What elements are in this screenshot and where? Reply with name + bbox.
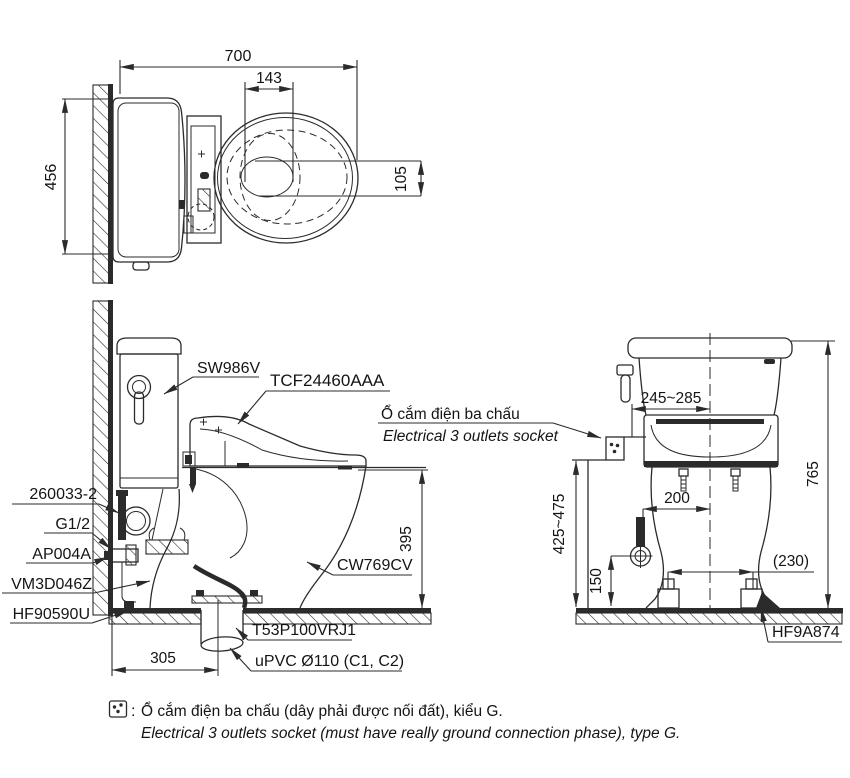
- dim-700-label: 700: [225, 48, 252, 65]
- top-view: 700 143 456 105: [43, 48, 421, 284]
- front-floor-hatch: [576, 613, 842, 624]
- dim-456-label: 456: [43, 164, 60, 191]
- legend-note-vi: Ổ cắm điện ba chấu (dây phải được nối đấ…: [141, 702, 503, 720]
- dim-seat-center: 143: [245, 70, 293, 182]
- flush-knob: [128, 376, 151, 399]
- top-control-unit: [184, 116, 221, 243]
- label-drain-pipe: uPVC Ø110 (C1, C2): [255, 653, 404, 670]
- side-floor-hatch-left: [109, 613, 201, 624]
- side-cistern: [117, 338, 181, 488]
- dim-395-label: 395: [398, 526, 415, 552]
- legend-note-en: Electrical 3 outlets socket (must have r…: [141, 725, 680, 742]
- label-cistern: SW986V: [197, 360, 260, 377]
- dim-765-label: 765: [805, 461, 822, 487]
- label-supply-hose: 260033-2: [29, 486, 97, 503]
- dim-143-label: 143: [256, 70, 282, 87]
- front-bowl: [646, 467, 780, 608]
- socket-label-vi: Ổ cắm điện ba chấu: [381, 405, 520, 423]
- dim-425-475-label: 425~475: [551, 494, 568, 555]
- dim-105-label: 105: [393, 166, 410, 192]
- dim-foot-spacing: (230): [668, 553, 814, 589]
- dim-valve-height: 150: [588, 556, 633, 606]
- dim-top-width: 700: [120, 48, 357, 160]
- dim-150-label: 150: [588, 568, 605, 594]
- top-cistern: [113, 98, 185, 270]
- side-labels: SW986V TCF24460AAA Ổ cắm điện ba chấu El…: [2, 360, 601, 671]
- label-flange: T53P100VRJ1: [252, 622, 356, 639]
- dim-230-label: (230): [773, 553, 809, 570]
- electrical-socket-icon: [572, 437, 646, 608]
- floor-flange: [192, 596, 262, 603]
- drain-pipe: [201, 636, 244, 653]
- dim-center-offset: 105: [255, 161, 421, 196]
- front-seat-unit: [644, 415, 778, 491]
- legend: : Ổ cắm điện ba chấu (dây phải được nối …: [110, 701, 681, 742]
- label-bowl: CW769CV: [337, 557, 413, 574]
- label-connector: VM3D046Z: [11, 576, 92, 593]
- dim-245-285-label: 245~285: [641, 390, 702, 407]
- label-fixing-kit: HF90590U: [13, 606, 90, 623]
- label-stop-valve: AP004A: [32, 546, 91, 563]
- label-seat-unit: TCF24460AAA: [270, 371, 385, 390]
- front-flush-handle: [617, 365, 633, 375]
- dim-200-label: 200: [664, 490, 690, 507]
- seat-bolt-left: [679, 469, 688, 491]
- dim-305-label: 305: [150, 650, 176, 667]
- legend-separator: :: [131, 703, 135, 720]
- socket-label-en: Electrical 3 outlets socket: [383, 428, 559, 445]
- inlet-spud: [146, 540, 188, 554]
- dim-rim-height: 395: [358, 470, 428, 608]
- flush-lever: [135, 392, 144, 424]
- side-bowl: [124, 466, 426, 608]
- label-thread: G1/2: [55, 516, 90, 533]
- label-foot-cap: HF9A874: [772, 624, 840, 641]
- technical-drawing-page: 700 143 456 105: [0, 0, 850, 778]
- seat-bolt-right: [731, 469, 740, 491]
- three-dot-socket-icon: [110, 701, 127, 717]
- dim-socket-height: 425~475: [551, 461, 576, 607]
- side-view: SW986V TCF24460AAA Ổ cắm điện ba chấu El…: [2, 300, 601, 676]
- side-plumbing: [104, 490, 262, 652]
- front-view: 245~285 200 150 425~475 (230): [551, 333, 843, 642]
- front-supply-valve: [629, 517, 653, 568]
- top-bowl: [214, 113, 358, 243]
- toilet-installation-diagram: 700 143 456 105: [0, 0, 850, 778]
- side-seat-unit: [183, 416, 366, 493]
